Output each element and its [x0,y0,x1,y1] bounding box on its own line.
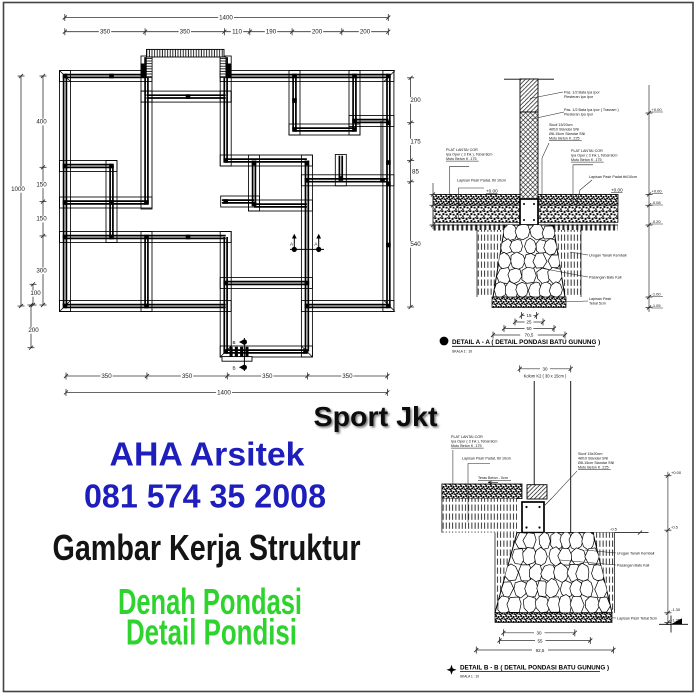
svg-text:+0.00: +0.00 [652,189,663,194]
svg-text:Ipa Oper ( 3 lnk ), Tebal 8cm: Ipa Oper ( 3 lnk ), Tebal 8cm [571,154,617,158]
svg-text:350: 350 [101,373,112,380]
svg-text:25: 25 [526,320,532,325]
svg-text:Pasangan Batu Kali: Pasangan Batu Kali [589,276,622,280]
svg-text:50: 50 [526,326,532,331]
svg-text:Pas. 1/2 Bata Ipa Ipor: Pas. 1/2 Bata Ipa Ipor [564,91,600,95]
svg-text:100: 100 [30,290,41,297]
svg-text:-1.30: -1.30 [671,607,681,612]
svg-text:PLAT LANTAI COR: PLAT LANTAI COR [451,435,483,439]
svg-text:200: 200 [410,97,421,104]
svg-text:15: 15 [526,313,532,318]
svg-text:AHA Arsitek: AHA Arsitek [110,436,306,473]
svg-text:Teras Beton - 0cm: Teras Beton - 0cm [478,476,508,480]
svg-text:Mutu Beton K .225: Mutu Beton K .225 [578,466,609,470]
svg-text:150: 150 [36,181,47,188]
svg-text:4Ø10 Standar SNI: 4Ø10 Standar SNI [549,128,579,132]
svg-text:Plesteran Ipa Ipor: Plesteran Ipa Ipor [564,113,594,117]
svg-text:Tebal 5cm: Tebal 5cm [589,302,606,306]
svg-text:190: 190 [266,29,277,36]
svg-text:4Ø10 Standar SNI: 4Ø10 Standar SNI [578,457,608,461]
svg-text:300: 300 [36,267,47,274]
svg-text:-0.20: -0.20 [652,219,662,224]
svg-text:-1.00: -1.00 [652,292,662,297]
svg-text:Pas. 1/2 Bata Ipa Ipor ( Trasr: Pas. 1/2 Bata Ipa Ipor ( Trasram ) [564,108,619,112]
svg-text:1400: 1400 [217,389,231,396]
svg-text:200: 200 [312,29,323,36]
svg-text:-1.05: -1.05 [652,303,662,308]
svg-text:110: 110 [232,29,242,36]
svg-text:85: 85 [412,168,419,175]
svg-text:-0.5: -0.5 [671,525,679,530]
svg-text:DETAIL B - B ( DETAIL PONDASI: DETAIL B - B ( DETAIL PONDASI BATU GUNUN… [460,665,609,672]
svg-text:400: 400 [36,119,47,126]
svg-text:B: B [233,365,236,370]
svg-text:92,5: 92,5 [536,648,545,653]
svg-text:30: 30 [542,367,548,372]
svg-text:Sloof 15/20cm: Sloof 15/20cm [549,123,573,127]
svg-text:Mutu Beton K .175: Mutu Beton K .175 [571,158,602,162]
svg-text:Sloof 15x20cm: Sloof 15x20cm [578,452,602,456]
svg-text:Ø8-15cm Standar SNI: Ø8-15cm Standar SNI [549,132,585,136]
svg-text:Lapisan Pasir Padat, tbl 10cm: Lapisan Pasir Padat, tbl 10cm [457,179,506,183]
svg-text:350: 350 [180,29,191,36]
svg-text:-0.08: -0.08 [652,200,662,205]
svg-text:Lapisan Pasir: Lapisan Pasir [589,297,612,301]
svg-text:Ipa Oper ( 3 lnk ), Tebal 8cm: Ipa Oper ( 3 lnk ), Tebal 8cm [446,153,492,157]
svg-text:Ipa Oper ( 3 lnk ), Tebal 8cm: Ipa Oper ( 3 lnk ), Tebal 8cm [451,440,497,444]
svg-text:Lapisan Pasir Padat tbl/10cm: Lapisan Pasir Padat tbl/10cm [589,175,637,179]
svg-text:PLAT LANTAI COR: PLAT LANTAI COR [446,148,478,152]
svg-text:A: A [290,242,294,247]
svg-text:200: 200 [28,327,39,334]
svg-text:350: 350 [182,373,193,380]
svg-text:350: 350 [342,373,353,380]
svg-text:Pasangan Batu Kali: Pasangan Batu Kali [617,564,650,568]
svg-text:350: 350 [100,29,111,36]
svg-text:30: 30 [536,631,542,636]
svg-text:200: 200 [360,29,371,36]
svg-text:+0.00: +0.00 [671,470,682,475]
svg-text:150: 150 [36,216,47,223]
svg-text:175: 175 [410,139,421,146]
svg-text:Detail Pondisi: Detail Pondisi [126,612,297,653]
svg-text:PLAT LANTAI COR: PLAT LANTAI COR [571,149,603,153]
svg-text:A: A [314,242,318,247]
svg-text:Urugan Tanah Kembali: Urugan Tanah Kembali [589,254,627,258]
svg-text:Sport Jkt: Sport Jkt [314,401,438,432]
svg-text:1000: 1000 [11,186,25,193]
svg-text:Ø8-15cm Standar SNI: Ø8-15cm Standar SNI [578,461,614,465]
svg-text:70,5: 70,5 [525,333,534,338]
svg-text:Mutu Beton K .225: Mutu Beton K .225 [549,137,580,141]
svg-text:+0.00: +0.00 [611,188,623,193]
svg-text:55: 55 [537,638,543,643]
svg-text:Lapisan Pasir Padat, tbl 10cm: Lapisan Pasir Padat, tbl 10cm [462,457,511,461]
svg-text:Gambar Kerja Struktur: Gambar Kerja Struktur [53,527,361,568]
svg-text:+0.00: +0.00 [486,189,498,194]
svg-text:081 574 35 2008: 081 574 35 2008 [84,478,326,515]
svg-text:1400: 1400 [219,15,233,22]
svg-text:-0.5: -0.5 [610,527,618,532]
svg-text:DETAIL A - A ( DETAIL PONDASI: DETAIL A - A ( DETAIL PONDASI BATU GUNUN… [452,339,600,346]
svg-text:540: 540 [410,241,421,248]
svg-text:+0.00: +0.00 [652,107,663,112]
svg-text:Urugan Tanah Kembali: Urugan Tanah Kembali [617,552,655,556]
svg-text:350: 350 [262,373,273,380]
svg-text:Lapisan Pasir Tebal 5cm: Lapisan Pasir Tebal 5cm [617,617,657,621]
svg-text:Mutu Beton K .175: Mutu Beton K .175 [451,444,482,448]
svg-text:B: B [233,340,236,345]
svg-text:Mutu Beton K .175: Mutu Beton K .175 [446,157,477,161]
svg-text:SKALA 1 : 10: SKALA 1 : 10 [460,675,479,679]
svg-text:SKALA 1 : 10: SKALA 1 : 10 [452,350,472,354]
svg-text:Plesteran Ipa Ipor: Plesteran Ipa Ipor [564,95,594,99]
svg-text:Kolom K2 ( 30 x 15cm ): Kolom K2 ( 30 x 15cm ) [524,374,567,379]
